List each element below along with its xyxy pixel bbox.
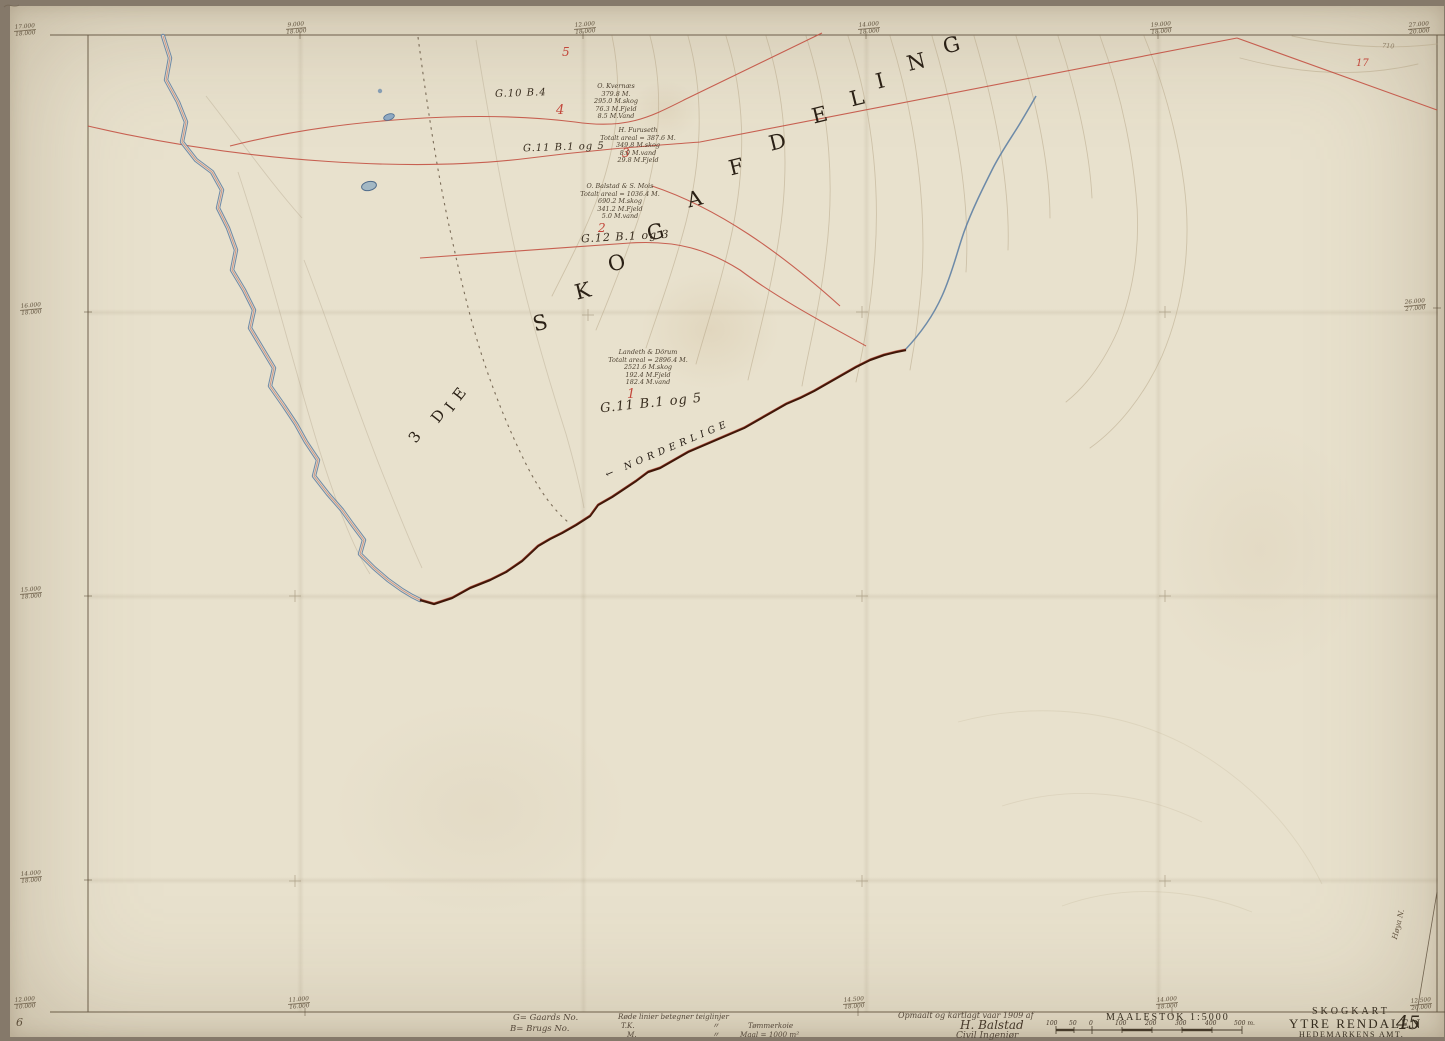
edge-coordinate: 14.00018.000	[1155, 996, 1178, 1011]
scale-tick: 500 m.	[1234, 1020, 1255, 1027]
owner-line: 8.5 M.Vand	[556, 113, 676, 121]
edge-coordinate: 17.00018.000	[13, 23, 36, 38]
sheet-number: 45	[1396, 1012, 1420, 1034]
plot-number: 1	[627, 387, 635, 402]
owner-line: 182.4 M.vand	[578, 379, 718, 387]
stream	[905, 96, 1036, 350]
corner-scribble	[4, 5, 19, 7]
map-linework	[0, 0, 1445, 1041]
ponds	[361, 89, 395, 192]
surveyor-title: Civil Ingeniør	[956, 1031, 1018, 1041]
surveyor-signature: H. Balstad	[960, 1018, 1024, 1032]
plot-number: 2	[598, 221, 606, 235]
edge-coordinate: 11.00016.000	[287, 996, 310, 1011]
plot-number: 17	[1356, 58, 1369, 69]
edge-coordinate: 14.00018.000	[19, 870, 42, 885]
scale-bar	[1056, 1026, 1242, 1034]
owner-annotation: H. Furuseth Totalt areal = 387.6 M. 349.…	[568, 127, 708, 165]
edge-coordinate: 12.00018.000	[573, 21, 596, 36]
legend-gaards: G= Gaards No.	[513, 1013, 578, 1023]
contour-elevation-label: 710	[1382, 41, 1395, 50]
edge-coordinate: 12.50020.000	[1409, 997, 1432, 1012]
legend-m-abbr: M.	[627, 1030, 637, 1039]
edge-coordinate: 16.00018.000	[19, 302, 42, 317]
scale-tick: 300	[1175, 1020, 1186, 1027]
map-sheet: 3 D I E S K O G A F D E L I N G ← NORDER…	[0, 0, 1445, 1041]
plot-number: 5	[562, 45, 570, 59]
edge-coordinate: 14.00018.000	[857, 21, 880, 36]
dashed-boundary-line	[418, 37, 568, 522]
edge-coordinate: 15.00018.000	[19, 586, 42, 601]
owner-annotation: O. Kvernæs 379.8 M. 295.0 M.skog 76.3 M.…	[556, 83, 676, 121]
scale-tick: 100	[1115, 1020, 1126, 1027]
adjacent-sheet-number: 6	[16, 1016, 23, 1029]
edge-coordinate: 9.00018.000	[285, 21, 306, 36]
owner-line: 5.0 M.vand	[545, 213, 695, 221]
edge-coordinate: 27.00020.000	[1407, 21, 1430, 36]
contour-lines-faint	[958, 711, 1322, 912]
scale-tick: 100	[1046, 1020, 1057, 1027]
owner-line: 29.8 M.Fjeld	[568, 157, 708, 165]
edge-coordinate: 12.00010.000	[13, 996, 36, 1011]
scale-tick: 400	[1205, 1020, 1216, 1027]
scale-tick: 0	[1089, 1020, 1093, 1027]
scale-tick: 200	[1145, 1020, 1156, 1027]
legend-tk-abbr: T.K.	[621, 1021, 635, 1030]
red-teig-lines	[88, 33, 1437, 346]
registration-crosses	[289, 306, 1171, 887]
legend-tk-term: Tømmerkoie	[748, 1021, 793, 1030]
border-ticks	[84, 31, 1441, 1016]
scale-tick: 50	[1069, 1020, 1077, 1027]
corner-diagonal-line	[1417, 892, 1437, 1012]
edge-coordinate: 19.00018.000	[1149, 21, 1172, 36]
owner-annotation: Landeth & Dörum Totalt areal = 2896.4 M.…	[578, 349, 718, 387]
edge-coordinate: 26.00027.000	[1403, 298, 1426, 313]
owner-annotation: O. Balstad & S. Mois Totalt areal = 1036…	[545, 183, 695, 221]
legend-brugs: B= Brugs No.	[510, 1024, 569, 1034]
map-region-title: HEDEMARKENS AMT.	[1299, 1030, 1404, 1039]
legend-red-lines-note: Røde linier betegner teiglinjer	[618, 1012, 729, 1021]
legend-ditto-mark: 〃	[712, 1030, 719, 1040]
edge-coordinate: 14.50018.000	[842, 996, 865, 1011]
parcel-code: G.10 B.4	[495, 87, 547, 100]
map-border	[50, 35, 1445, 1012]
legend-m-term: Maal = 1000 m²	[740, 1030, 799, 1039]
